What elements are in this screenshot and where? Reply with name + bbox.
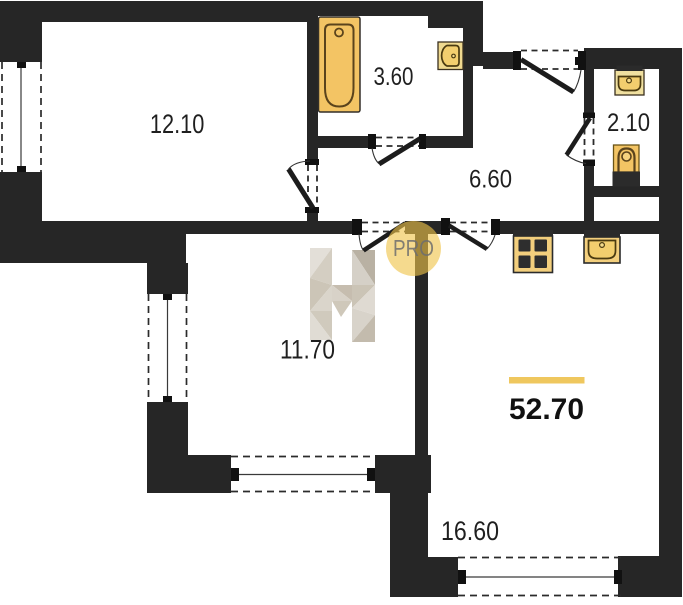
- svg-text:52.70: 52.70: [509, 393, 584, 426]
- svg-text:3.60: 3.60: [374, 63, 414, 91]
- svg-text:11.70: 11.70: [280, 335, 335, 365]
- svg-text:2.10: 2.10: [607, 109, 650, 137]
- svg-text:16.60: 16.60: [441, 516, 499, 546]
- svg-text:6.60: 6.60: [469, 166, 512, 194]
- svg-text:12.10: 12.10: [150, 109, 205, 139]
- svg-text:PRO: PRO: [393, 235, 434, 261]
